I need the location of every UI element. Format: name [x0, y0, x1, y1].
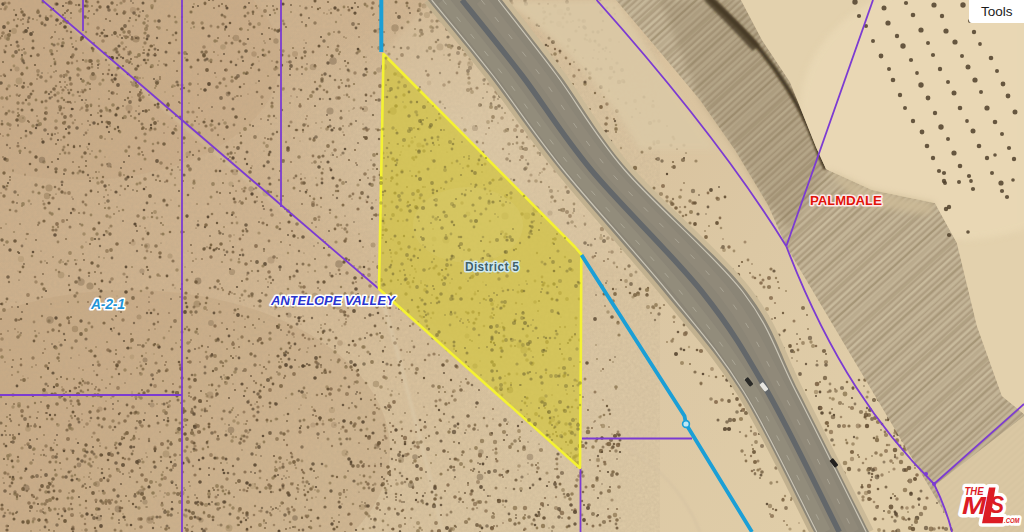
svg-text:M: M: [962, 493, 987, 519]
svg-text:Tools: Tools: [981, 4, 1013, 19]
svg-text:PALMDALE: PALMDALE: [810, 193, 882, 208]
svg-text:ANTELOPE VALLEY: ANTELOPE VALLEY: [270, 293, 397, 308]
svg-text:S: S: [990, 492, 1005, 518]
svg-text:.COM: .COM: [1004, 516, 1020, 525]
svg-text:A-2-1: A-2-1: [90, 296, 125, 312]
svg-text:District 5: District 5: [465, 260, 519, 274]
